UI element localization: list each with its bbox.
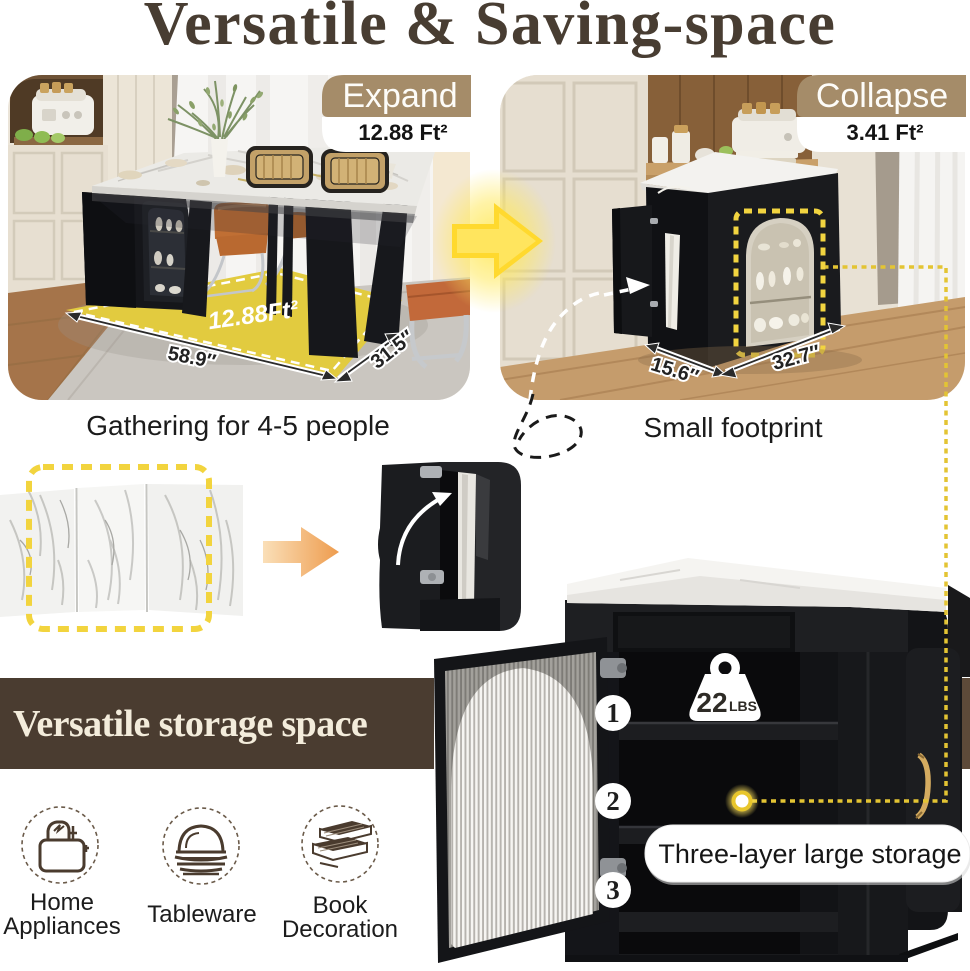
- svg-text:22: 22: [696, 687, 727, 718]
- svg-text:3.41 Ft²: 3.41 Ft²: [846, 120, 923, 145]
- svg-text:3: 3: [606, 875, 620, 905]
- svg-text:Tableware: Tableware: [147, 901, 256, 928]
- svg-text:Home: Home: [30, 889, 94, 916]
- svg-text:Small footprint: Small footprint: [644, 412, 823, 443]
- svg-text:Collapse: Collapse: [816, 77, 948, 115]
- svg-text:Versatile storage space: Versatile storage space: [13, 703, 367, 745]
- svg-text:1: 1: [606, 698, 620, 728]
- svg-text:Decoration: Decoration: [282, 916, 398, 943]
- svg-text:Three-layer large storage: Three-layer large storage: [658, 839, 961, 869]
- svg-text:Appliances: Appliances: [3, 913, 120, 940]
- svg-text:Versatile & Saving-space: Versatile & Saving-space: [144, 0, 837, 58]
- svg-text:LBS: LBS: [729, 698, 757, 714]
- svg-text:Expand: Expand: [342, 77, 457, 115]
- svg-text:Book: Book: [313, 892, 369, 919]
- svg-text:2: 2: [606, 786, 620, 816]
- svg-text:12.88 Ft²: 12.88 Ft²: [358, 120, 447, 145]
- svg-text:Gathering for 4-5 people: Gathering for 4-5 people: [86, 410, 390, 441]
